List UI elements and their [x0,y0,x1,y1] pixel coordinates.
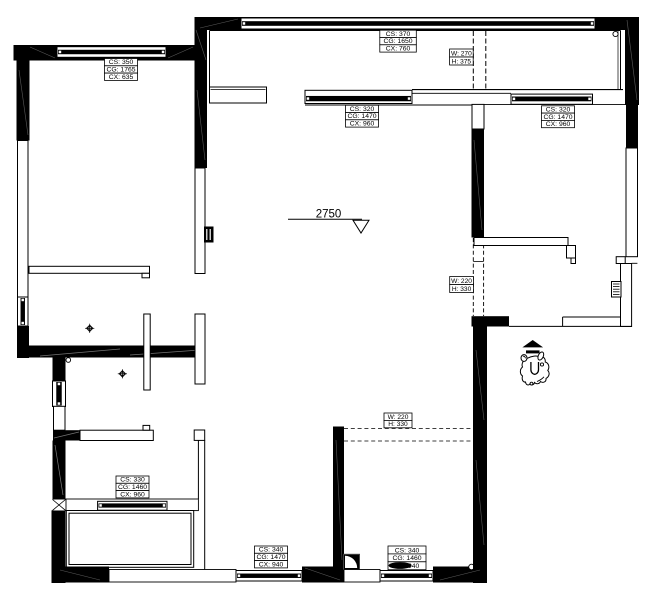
svg-text:H: 330: H: 330 [388,421,408,428]
svg-text:CX: 960: CX: 960 [120,491,145,498]
svg-text:CX: 960: CX: 960 [546,121,571,128]
svg-text:W: 270: W: 270 [451,50,472,57]
svg-text:2750: 2750 [316,209,342,221]
svg-text:CG: 1470: CG: 1470 [256,554,285,561]
svg-text:CS: 330: CS: 330 [120,477,145,484]
svg-text:H: 375: H: 375 [452,58,472,65]
svg-text:CG: 1470: CG: 1470 [347,113,376,120]
svg-text:CX: 960: CX: 960 [350,121,375,128]
svg-text:CX: 635: CX: 635 [109,74,134,81]
svg-text:W: 220: W: 220 [451,278,472,285]
svg-text:CX: 760: CX: 760 [386,46,411,53]
svg-text:CG: 1460: CG: 1460 [392,555,421,562]
svg-text:CS: 320: CS: 320 [350,106,375,113]
svg-text:CG: 1650: CG: 1650 [384,38,413,45]
svg-text:CG: 1470: CG: 1470 [543,114,572,121]
svg-text:CG: 1460: CG: 1460 [118,484,147,491]
svg-text:CS: 340: CS: 340 [395,547,420,554]
svg-text:CX: 940: CX: 940 [259,561,284,568]
svg-text:CS: 340: CS: 340 [259,547,284,554]
svg-text:CS: 350: CS: 350 [109,59,134,66]
svg-text:H: 330: H: 330 [452,286,472,293]
svg-text:CG: 1765: CG: 1765 [106,67,135,74]
svg-text:CS: 370: CS: 370 [386,31,411,38]
svg-text:CS: 320: CS: 320 [546,107,571,114]
svg-text:W: 220: W: 220 [388,414,409,421]
